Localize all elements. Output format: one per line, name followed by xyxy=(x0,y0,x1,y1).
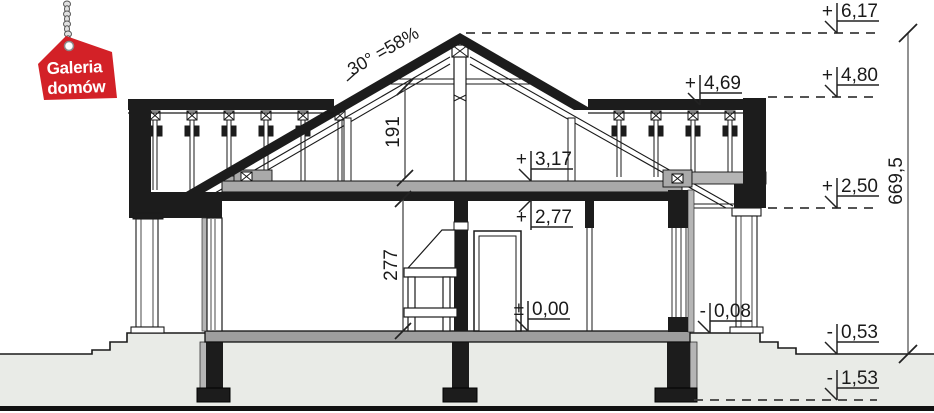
level-value: 3,17 xyxy=(535,149,572,170)
level-marker-ceiling: + 2,77 xyxy=(516,200,573,230)
wall-plate-right xyxy=(663,170,692,187)
stud-row-right xyxy=(612,111,737,177)
level-value: 4,69 xyxy=(704,73,741,94)
level-marker-eaves: + 4,80 xyxy=(822,65,879,97)
logo-chain xyxy=(64,1,72,42)
level-marker-ground-floor: ± 0,00 xyxy=(514,299,570,331)
house-cross-section-page: + 6,17 + 4,80 + 4,69 + 2,50 xyxy=(0,0,934,413)
fireplace-shelf-bottom xyxy=(404,308,457,317)
level-marker-grade: - 0,53 xyxy=(825,322,879,354)
foundation-footing-right xyxy=(655,388,697,402)
dimension-attic-height: 191 xyxy=(383,79,413,186)
level-value: 0,08 xyxy=(714,301,751,322)
foundation-footing-middle xyxy=(443,388,477,402)
ridge-post xyxy=(452,45,468,181)
level-sign: + xyxy=(516,149,527,170)
exterior-wall-right xyxy=(668,190,694,332)
logo: Galeria domów xyxy=(38,1,117,100)
level-sign: + xyxy=(822,1,833,22)
exterior-wall-left xyxy=(202,218,222,331)
fireplace-shelf-top xyxy=(404,268,457,277)
level-value: 0,53 xyxy=(841,322,878,343)
attic-wall-left xyxy=(129,99,151,195)
porch-column-left xyxy=(131,213,164,333)
level-marker-ridge: + 6,17 xyxy=(822,1,879,33)
level-sign: + xyxy=(685,73,696,94)
attic-height-value: 191 xyxy=(383,116,404,148)
interior-wall xyxy=(585,195,594,331)
attic-post-left xyxy=(344,118,351,181)
level-sign: - xyxy=(700,301,706,322)
logo-grommet xyxy=(65,42,74,51)
level-sign: - xyxy=(827,368,833,389)
building-section-drawing: + 6,17 + 4,80 + 4,69 + 2,50 xyxy=(0,0,934,413)
dimension-total-height: 669,5 xyxy=(886,24,917,363)
level-value: 4,80 xyxy=(841,65,878,86)
level-marker-porch-ceiling: + 2,50 xyxy=(822,176,879,208)
logo-text-line1: Galeria xyxy=(46,57,103,78)
ground-floor-slab xyxy=(205,331,690,342)
fireplace-leg-left xyxy=(408,277,415,331)
logo-tag: Galeria domów xyxy=(38,36,117,100)
room-height-value: 277 xyxy=(381,249,402,281)
level-sign: + xyxy=(516,207,527,228)
level-sign: - xyxy=(827,322,833,343)
fireplace-hood xyxy=(408,230,455,268)
level-sign: + xyxy=(822,65,833,86)
level-value: 1,53 xyxy=(841,368,878,389)
level-marker-attic-floor: + 3,17 xyxy=(516,149,573,181)
logo-text-line2: domów xyxy=(47,77,107,98)
ground-baseline xyxy=(0,406,934,411)
level-value: 0,00 xyxy=(532,299,569,320)
level-value: 2,77 xyxy=(535,207,572,228)
level-sign: ± xyxy=(514,299,524,320)
total-height-value: 669,5 xyxy=(886,157,907,205)
foundation-pier-middle xyxy=(452,342,469,388)
level-sign: + xyxy=(822,176,833,197)
roof-slope-right xyxy=(460,33,593,110)
foundation-footing-left xyxy=(197,388,230,402)
fireplace-leg-right xyxy=(443,277,450,331)
attic-wall-right xyxy=(743,98,766,186)
fireplace xyxy=(404,230,457,331)
level-value: 6,17 xyxy=(841,1,878,22)
level-value: 2,50 xyxy=(841,176,878,197)
